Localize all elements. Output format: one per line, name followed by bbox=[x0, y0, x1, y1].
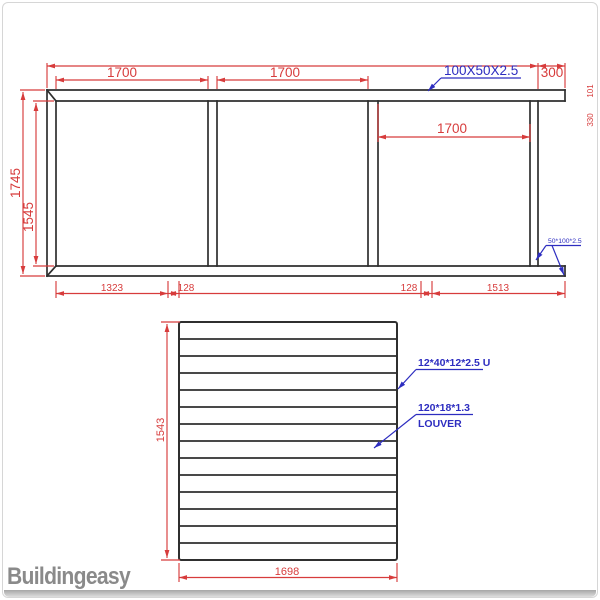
louver-slats bbox=[180, 339, 396, 543]
callout-u-channel: 12*40*12*2.5 U bbox=[418, 357, 490, 369]
dim-edge-bottom: 330 bbox=[586, 113, 595, 127]
brand-watermark: Buildingeasy bbox=[7, 563, 130, 591]
frame-structure bbox=[47, 90, 565, 276]
elevation-drawing: 300 1700 1700 1700 1745 1545 bbox=[8, 63, 595, 298]
dim-bay1: 1700 bbox=[107, 65, 137, 80]
elevation-dimensions: 300 1700 1700 1700 1745 1545 bbox=[8, 63, 595, 298]
callout-beam-size: 100X50X2.5 bbox=[444, 63, 518, 78]
dim-inner-height: 1545 bbox=[21, 202, 36, 232]
dim-bottom-1323: 1323 bbox=[101, 283, 124, 294]
dim-bottom-128-left: 128 bbox=[178, 283, 195, 294]
dim-bottom-1513: 1513 bbox=[487, 283, 510, 294]
dim-louver-width: 1698 bbox=[275, 566, 299, 578]
drawing-canvas: 300 1700 1700 1700 1745 1545 bbox=[0, 0, 600, 600]
dim-bottom-128-right: 128 bbox=[401, 283, 418, 294]
dim-bay3: 1700 bbox=[437, 121, 467, 136]
dim-louver-height: 1543 bbox=[155, 418, 167, 442]
callout-slat-label: LOUVER bbox=[418, 418, 462, 430]
louver-panel bbox=[179, 322, 397, 560]
dim-edge-top: 101 bbox=[586, 84, 595, 98]
elevation-callouts: 100X50X2.5 50*100*2.5 bbox=[428, 63, 582, 275]
callout-post-size: 50*100*2.5 bbox=[548, 238, 582, 245]
cad-drawing: 300 1700 1700 1700 1745 1545 bbox=[0, 0, 600, 600]
dim-bay2: 1700 bbox=[270, 65, 300, 80]
dim-outer-height: 1745 bbox=[8, 168, 23, 198]
louver-callouts: 12*40*12*2.5 U 120*18*1.3 LOUVER bbox=[374, 357, 490, 448]
callout-slat-size: 120*18*1.3 bbox=[418, 402, 470, 414]
brand-text-building: Building bbox=[7, 563, 86, 590]
image-frame-shadow bbox=[4, 590, 596, 597]
dim-overhang: 300 bbox=[541, 65, 564, 80]
louver-drawing: 1543 1698 12*40*12*2.5 U 120*18*1.3 LOUV… bbox=[155, 322, 490, 582]
brand-text-easy: easy bbox=[86, 563, 130, 593]
